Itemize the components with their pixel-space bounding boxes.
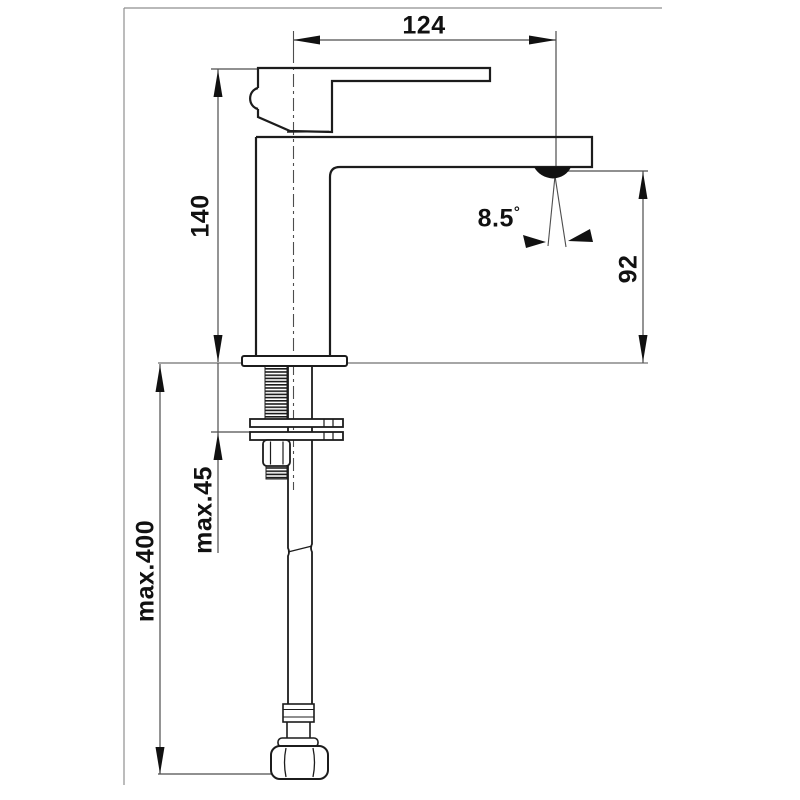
dim-140-height	[211, 69, 258, 362]
stream-angle-value: 8.5	[478, 205, 514, 233]
body-height-label: 140	[189, 194, 214, 237]
temperature-indicator-dot	[250, 88, 258, 109]
base-plate	[242, 356, 347, 366]
faucet-dimension-drawing	[0, 0, 800, 800]
degree-symbol: °	[514, 204, 521, 221]
max-deck-thickness-label: max.45	[192, 466, 217, 554]
spout-aerator	[534, 167, 571, 179]
drawing-frame	[124, 8, 662, 785]
stream-angle-label: 8.5°	[478, 207, 521, 232]
dim-angle-stream	[523, 176, 593, 248]
hose-end-fitting	[271, 704, 328, 779]
supply-hose	[288, 366, 312, 704]
max-hose-length-label: max.400	[134, 520, 159, 622]
spout-reach-label: 124	[402, 14, 445, 39]
outlet-height-label: 92	[617, 255, 642, 284]
faucet-handle	[250, 68, 490, 132]
mounting-washers	[250, 419, 343, 440]
technical-drawing-canvas: 124 140 8.5° 92 max.45 max.400	[0, 0, 800, 800]
mounting-nut	[263, 440, 290, 466]
